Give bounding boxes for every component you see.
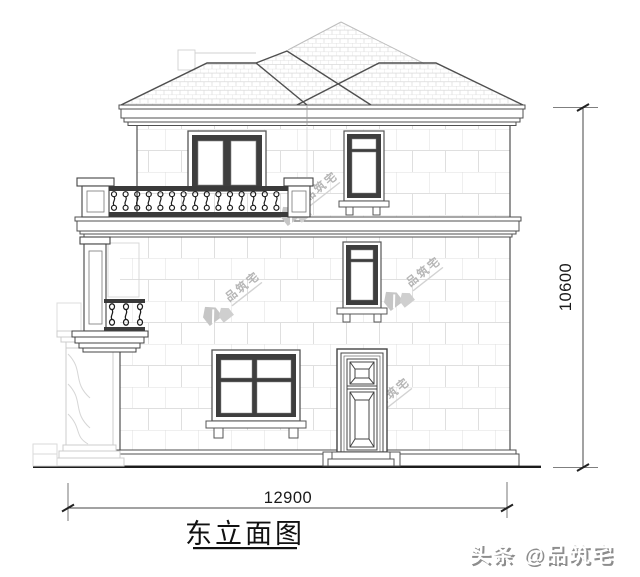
corner-pilaster-cap <box>80 237 110 244</box>
drawing-title: 东立面图 <box>185 519 305 549</box>
footer-watermark: 头条 @品筑宅 头条 @品筑宅 <box>469 543 616 569</box>
width-dimension-label: 12900 <box>264 489 312 507</box>
balcony-bottom-rail <box>109 212 288 217</box>
east-elevation-drawing: 品筑宅 品筑宅 品筑宅 品筑宅 <box>0 0 640 577</box>
balcony-top-rail <box>109 186 288 191</box>
sill-bracket <box>214 428 223 438</box>
balcony-pier-right-cap <box>284 178 313 186</box>
window-first-floor <box>206 350 306 438</box>
door-step <box>332 452 390 459</box>
title-underline <box>193 547 297 549</box>
sill-bracket <box>289 428 298 438</box>
eave-cornice <box>119 105 525 126</box>
sill-bracket <box>346 207 353 215</box>
corner-balcony-bottom-rail <box>104 327 145 331</box>
window-third-floor-right <box>339 131 389 215</box>
door-steps <box>323 452 400 466</box>
floor-band <box>75 217 521 237</box>
sill-bracket <box>343 314 350 322</box>
window-third-floor-left <box>188 131 266 191</box>
height-dimension-label: 10600 <box>557 263 575 311</box>
entry-door <box>337 349 387 452</box>
base-band <box>109 450 519 466</box>
sill-bracket <box>374 314 381 322</box>
drawing-title-group: 东立面图 <box>185 519 305 549</box>
balcony-pier-left-cap <box>77 178 114 186</box>
door-step <box>328 459 394 466</box>
sill-bracket <box>373 207 380 215</box>
architectural-drawing-page: 品筑宅 品筑宅 品筑宅 品筑宅 <box>0 0 640 577</box>
window-second-floor-right <box>337 242 387 322</box>
corner-pilaster <box>84 244 106 331</box>
footer-watermark-text: 头条 @品筑宅 <box>469 543 614 567</box>
walls <box>120 125 510 450</box>
corner-balcony-top-rail <box>104 299 145 303</box>
wall-lower-floors <box>120 237 510 450</box>
